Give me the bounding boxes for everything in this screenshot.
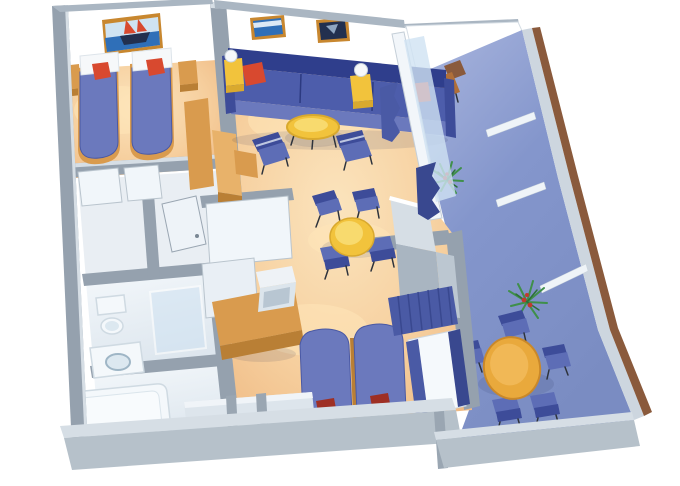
vestibule-door [206, 196, 292, 266]
seascape-painting [250, 15, 286, 40]
coffee-table [285, 115, 345, 149]
suite-floorplan [0, 0, 680, 486]
dark-painting [316, 18, 350, 43]
twin-bed [78, 52, 120, 164]
sink-basin [106, 354, 130, 370]
red-pillow [92, 62, 111, 80]
closet-door [124, 165, 162, 201]
twin-bed [130, 48, 174, 160]
floorplan-canvas [0, 0, 680, 486]
closet-door [78, 168, 122, 206]
door-handle [195, 234, 199, 238]
red-pillow [242, 62, 266, 86]
lamp-icon [355, 64, 368, 77]
shower-glass [150, 286, 206, 354]
lamp-icon [225, 50, 237, 62]
red-pillow [146, 58, 165, 76]
sailboat-painting [102, 13, 163, 55]
nightstand [178, 60, 198, 92]
sink-vanity [90, 342, 144, 378]
dining-table [330, 218, 374, 256]
tv [256, 266, 296, 312]
